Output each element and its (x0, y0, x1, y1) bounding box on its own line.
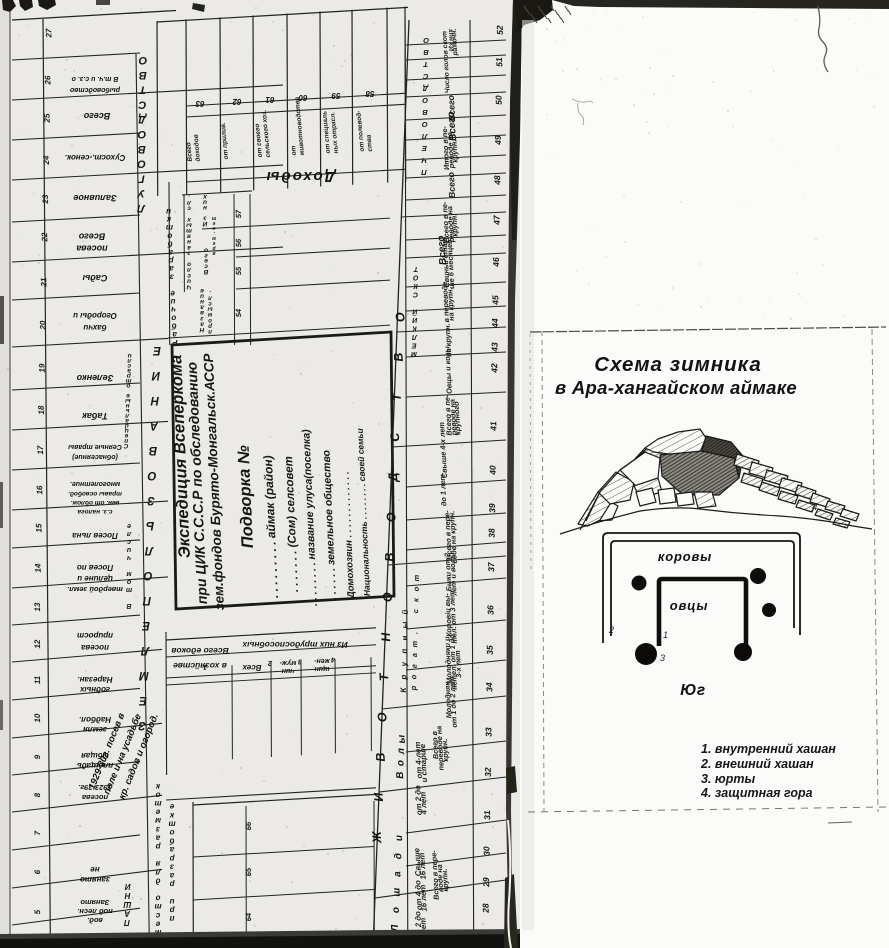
svg-text:Всего: Всего (446, 171, 457, 198)
svg-text:1: 1 (203, 663, 207, 672)
svg-text:Нарезан.: Нарезан. (77, 675, 112, 684)
svg-text:вод.: вод. (87, 916, 103, 925)
svg-text:33: 33 (483, 727, 493, 737)
svg-text:О: О (393, 312, 408, 323)
svg-text:С: С (422, 72, 428, 81)
svg-text:муж-: муж- (279, 659, 296, 666)
svg-text:38: 38 (486, 528, 496, 538)
svg-text:3: 3 (660, 653, 665, 663)
svg-text:4: 4 (812, 502, 818, 513)
svg-text:23: 23 (41, 194, 50, 205)
svg-text:К: К (412, 325, 417, 332)
svg-text:11: 11 (33, 675, 42, 684)
svg-text:18: 18 (37, 405, 46, 415)
svg-text:на крупн.: на крупн. (445, 287, 456, 321)
svg-text:П: П (124, 918, 130, 927)
svg-text:Д: Д (422, 84, 429, 93)
svg-text:С: С (388, 431, 403, 442)
svg-text:54: 54 (234, 308, 243, 317)
svg-text:31: 31 (482, 810, 492, 820)
svg-text:Заливное: Заливное (73, 193, 116, 203)
svg-text:Ж: Ж (370, 830, 385, 845)
svg-text:Ь: Ь (146, 519, 154, 531)
svg-text:22: 22 (40, 232, 49, 243)
svg-text:М: М (411, 350, 417, 357)
svg-text:26: 26 (43, 75, 52, 86)
svg-text:28: 28 (480, 903, 490, 914)
svg-text:34: 34 (484, 682, 494, 692)
svg-text:В: В (395, 771, 406, 779)
svg-text:16: 16 (35, 485, 44, 495)
svg-text:36: 36 (485, 605, 495, 615)
svg-text:Е: Е (139, 694, 147, 706)
svg-text:43: 43 (489, 342, 499, 353)
svg-text:т: т (410, 640, 419, 647)
svg-text:ства: ства (366, 134, 374, 152)
svg-text:Е: Е (412, 342, 417, 349)
svg-text:.: . (188, 193, 190, 200)
svg-text:т: т (412, 574, 421, 581)
svg-text:Доходы: Доходы (265, 168, 338, 185)
svg-text:чин: чин (281, 667, 294, 674)
svg-text:Занято: Занято (80, 898, 110, 907)
svg-text:З: З (138, 719, 146, 731)
svg-text:прирост: прирост (77, 631, 113, 640)
svg-text:о: о (187, 261, 191, 268)
svg-text:37: 37 (486, 561, 496, 572)
svg-text:61: 61 (265, 95, 274, 104)
svg-text:посева: посева (82, 793, 108, 802)
svg-text:х: х (203, 193, 208, 200)
svg-text:р: р (409, 685, 418, 691)
svg-text:Ш: Ш (123, 900, 131, 909)
svg-text:59: 59 (331, 91, 340, 100)
svg-text:н: н (400, 635, 409, 640)
svg-text:2: 2 (608, 625, 614, 635)
svg-text:20: 20 (38, 320, 47, 331)
svg-text:О: О (143, 569, 152, 581)
svg-text:Посев льна: Посев льна (72, 531, 118, 540)
svg-text:1. внутренний хашан: 1. внутренний хашан (701, 742, 836, 756)
svg-text:А: А (124, 909, 131, 918)
svg-text:4. защитная гора: 4. защитная гора (700, 786, 813, 800)
svg-text:50: 50 (493, 95, 503, 105)
svg-text:и: и (169, 897, 174, 906)
svg-text:Н: Н (150, 394, 159, 406)
svg-text:10: 10 (33, 713, 42, 723)
svg-text:63: 63 (195, 99, 204, 108)
svg-text:И: И (372, 791, 387, 802)
svg-text:овцы: овцы (670, 598, 709, 613)
svg-text:41: 41 (488, 421, 498, 432)
svg-text:л: л (126, 530, 132, 537)
svg-text:Зеленко: Зеленко (76, 373, 113, 383)
svg-text:16 лет: 16 лет (418, 884, 428, 911)
svg-text:Л: Л (137, 202, 146, 214)
svg-text:от: от (290, 145, 298, 156)
svg-text:и: и (394, 835, 405, 842)
svg-text:Посев по: Посев по (77, 563, 113, 572)
svg-text:целине и: целине и (77, 574, 113, 583)
svg-text:крупн.: крупн. (449, 139, 459, 162)
svg-text:О: О (137, 128, 146, 140)
svg-text:3-х лет: 3-х лет (453, 650, 463, 679)
svg-text:г: г (410, 664, 419, 668)
svg-text:66: 66 (244, 821, 253, 830)
svg-text:В: В (423, 48, 429, 57)
svg-text:л: л (396, 747, 407, 756)
svg-text:С: С (137, 98, 146, 110)
svg-text:коровы: коровы (658, 549, 712, 564)
svg-text:о: о (204, 246, 208, 253)
svg-text:1: 1 (663, 630, 668, 640)
svg-text:42: 42 (489, 363, 499, 374)
svg-text:и: и (126, 546, 131, 553)
svg-text:17: 17 (36, 445, 45, 455)
svg-text:Табак: Табак (82, 411, 108, 421)
svg-text:О: О (384, 512, 399, 523)
svg-text:В: В (373, 752, 387, 762)
svg-text:крупн.: крупн. (440, 738, 450, 761)
svg-text:52: 52 (495, 25, 505, 35)
svg-text:е: е (127, 522, 131, 529)
svg-text:(обнасеяние): (обнасеяние) (71, 453, 117, 461)
svg-text:47: 47 (491, 214, 501, 226)
svg-text:Сады: Сады (82, 273, 107, 283)
svg-text:щин: щин (314, 665, 330, 672)
svg-text:Из них трудоспособных: Из них трудоспособных (241, 640, 348, 650)
svg-text:Л: Л (144, 544, 154, 556)
svg-text:О: О (422, 120, 428, 129)
svg-text:М: М (139, 669, 149, 681)
svg-text:у: у (399, 661, 408, 667)
svg-text:д: д (393, 853, 404, 860)
svg-text:рамочн.: рамочн. (451, 28, 459, 56)
svg-text:15: 15 (34, 523, 43, 533)
svg-text:в хозяйстве: в хозяйстве (173, 661, 227, 671)
svg-text:24: 24 (42, 155, 51, 166)
svg-text:Юг: Юг (680, 682, 705, 699)
svg-text:58: 58 (365, 89, 374, 98)
svg-text:я: я (155, 859, 161, 868)
svg-text:Д: Д (386, 472, 401, 483)
svg-text:Н: Н (379, 631, 394, 642)
svg-text:14: 14 (33, 563, 42, 573)
svg-text:о: о (409, 674, 418, 679)
svg-text:посева: посева (81, 643, 109, 652)
svg-text:О: О (413, 274, 419, 281)
svg-text:И: И (151, 369, 160, 381)
svg-text:твердой земл.: твердой земл. (67, 585, 123, 594)
svg-text:П: П (421, 168, 427, 177)
svg-text:посева: посева (76, 243, 107, 253)
svg-text:на крупн.: на крупн. (443, 323, 454, 357)
svg-text:Н: Н (124, 891, 130, 900)
svg-text:64: 64 (244, 912, 253, 921)
svg-text:35: 35 (485, 645, 495, 655)
svg-text:а: а (410, 653, 419, 658)
svg-text:И: И (125, 882, 131, 891)
svg-text:В: В (126, 602, 131, 609)
svg-text:ч: ч (127, 554, 131, 561)
svg-text:В: В (138, 143, 146, 155)
svg-text:57: 57 (234, 209, 243, 218)
svg-text:под лесн.: под лесн. (77, 907, 113, 916)
svg-text:т: т (126, 586, 132, 593)
svg-text:жен-: жен- (314, 657, 331, 664)
svg-text:т: т (211, 215, 216, 221)
svg-text:В: В (422, 108, 428, 117)
svg-text:годных: годных (79, 685, 110, 694)
svg-text:27: 27 (44, 28, 53, 39)
svg-text:О: О (137, 158, 146, 170)
svg-text:Т: Т (413, 265, 418, 272)
svg-text:О: О (381, 592, 396, 603)
svg-text:21: 21 (39, 277, 48, 288)
svg-text:В: В (149, 444, 157, 456)
svg-text:Сеяные травы: Сеяные травы (68, 443, 122, 450)
svg-text:В: В (139, 69, 147, 81)
svg-text:с: с (127, 538, 131, 545)
svg-text:56: 56 (234, 238, 243, 247)
svg-text:занято: занято (80, 875, 110, 884)
svg-text:о: о (391, 907, 402, 914)
svg-text:Огороды и: Огороды и (73, 311, 117, 320)
svg-text:В: В (391, 352, 405, 362)
svg-text:30: 30 (481, 846, 491, 856)
svg-text:вен. от облож.: вен. от облож. (70, 499, 119, 507)
svg-text:е: е (170, 289, 175, 298)
svg-text:46: 46 (491, 257, 501, 268)
svg-text:р: р (399, 674, 408, 680)
svg-text:Схема зимника: Схема зимника (594, 353, 761, 376)
svg-text:й: й (401, 609, 410, 614)
svg-text:12: 12 (33, 639, 42, 649)
svg-text:25: 25 (42, 113, 51, 124)
svg-text:65: 65 (244, 867, 253, 876)
svg-text:40: 40 (487, 465, 497, 476)
svg-text:и: и (128, 352, 132, 359)
svg-text:х: х (187, 216, 192, 223)
svg-text:О: О (422, 96, 428, 105)
svg-text:и: и (166, 207, 171, 216)
svg-text:51: 51 (494, 57, 504, 67)
svg-text:2. внешний хашан: 2. внешний хашан (700, 757, 814, 771)
svg-text:3. юрты: 3. юрты (701, 772, 755, 786)
svg-text:о: о (155, 894, 160, 903)
svg-text:е: е (169, 802, 174, 811)
svg-text:не: не (90, 865, 100, 874)
svg-text:о: о (395, 760, 406, 767)
svg-text:м: м (126, 570, 132, 577)
svg-text:Л: Л (412, 333, 418, 340)
svg-text:Всего: Всего (83, 111, 110, 121)
svg-text:39: 39 (487, 503, 497, 513)
svg-text:Л: Л (140, 644, 150, 656)
svg-text:п: п (400, 648, 409, 653)
svg-text:бахчи: бахчи (83, 323, 106, 332)
svg-text:Всех: Всех (242, 663, 262, 672)
svg-text:крупн.: крупн. (449, 213, 459, 236)
svg-text:о: о (126, 578, 131, 585)
svg-text:4 лет: 4 лет (418, 792, 428, 816)
svg-text:К: К (413, 282, 418, 289)
svg-text:О: О (375, 712, 390, 723)
svg-text:Ч: Ч (421, 156, 427, 165)
svg-text:многолетние.: многолетние. (70, 480, 120, 487)
svg-text:З: З (147, 494, 155, 506)
svg-text:45: 45 (490, 295, 500, 306)
svg-text:19: 19 (37, 363, 46, 373)
svg-text:Е: Е (142, 619, 150, 631)
svg-text:е: е (200, 287, 204, 294)
svg-text:ы: ы (400, 621, 409, 628)
svg-text:крупного: крупного (452, 401, 463, 435)
svg-text:О: О (138, 54, 147, 66)
svg-text:в Ара-хангайском аймаке: в Ара-хангайском аймаке (555, 377, 797, 398)
svg-text:Е: Е (153, 344, 161, 356)
svg-text:О: О (147, 469, 156, 481)
svg-text:е: е (126, 392, 130, 399)
svg-text:а: а (392, 871, 403, 878)
svg-text:55: 55 (234, 266, 243, 275)
svg-text:32: 32 (483, 767, 493, 777)
svg-text:13: 13 (33, 602, 42, 612)
svg-text:В: В (382, 552, 396, 562)
svg-text:о: о (412, 586, 421, 591)
svg-text:А: А (150, 419, 159, 431)
svg-text:Д: Д (138, 113, 147, 125)
svg-text:земля: земля (83, 725, 107, 734)
svg-text:2: 2 (267, 659, 273, 668)
svg-text:16 лет: 16 лет (417, 852, 427, 879)
svg-text:с.з. налога: с.з. налога (77, 508, 112, 515)
svg-text:Всего едоков: Всего едоков (171, 646, 228, 656)
svg-text:48: 48 (492, 175, 502, 186)
svg-text:травы освобод.: травы освобод. (68, 490, 122, 498)
svg-text:крупн.: крупн. (440, 868, 450, 891)
svg-text:49: 49 (493, 135, 503, 146)
svg-text:В т.ч. и с.з. о: В т.ч. и с.з. о (71, 75, 119, 82)
svg-text:П: П (142, 594, 151, 606)
svg-text:Всего: Всего (78, 231, 105, 241)
svg-text:ы: ы (396, 734, 407, 744)
svg-text:рыбоводство: рыбоводство (69, 86, 121, 94)
svg-text:Надбол.: Надбол. (79, 715, 111, 724)
svg-text:62: 62 (232, 97, 241, 106)
svg-text:Сухост.-сенок.: Сухост.-сенок. (65, 153, 126, 162)
